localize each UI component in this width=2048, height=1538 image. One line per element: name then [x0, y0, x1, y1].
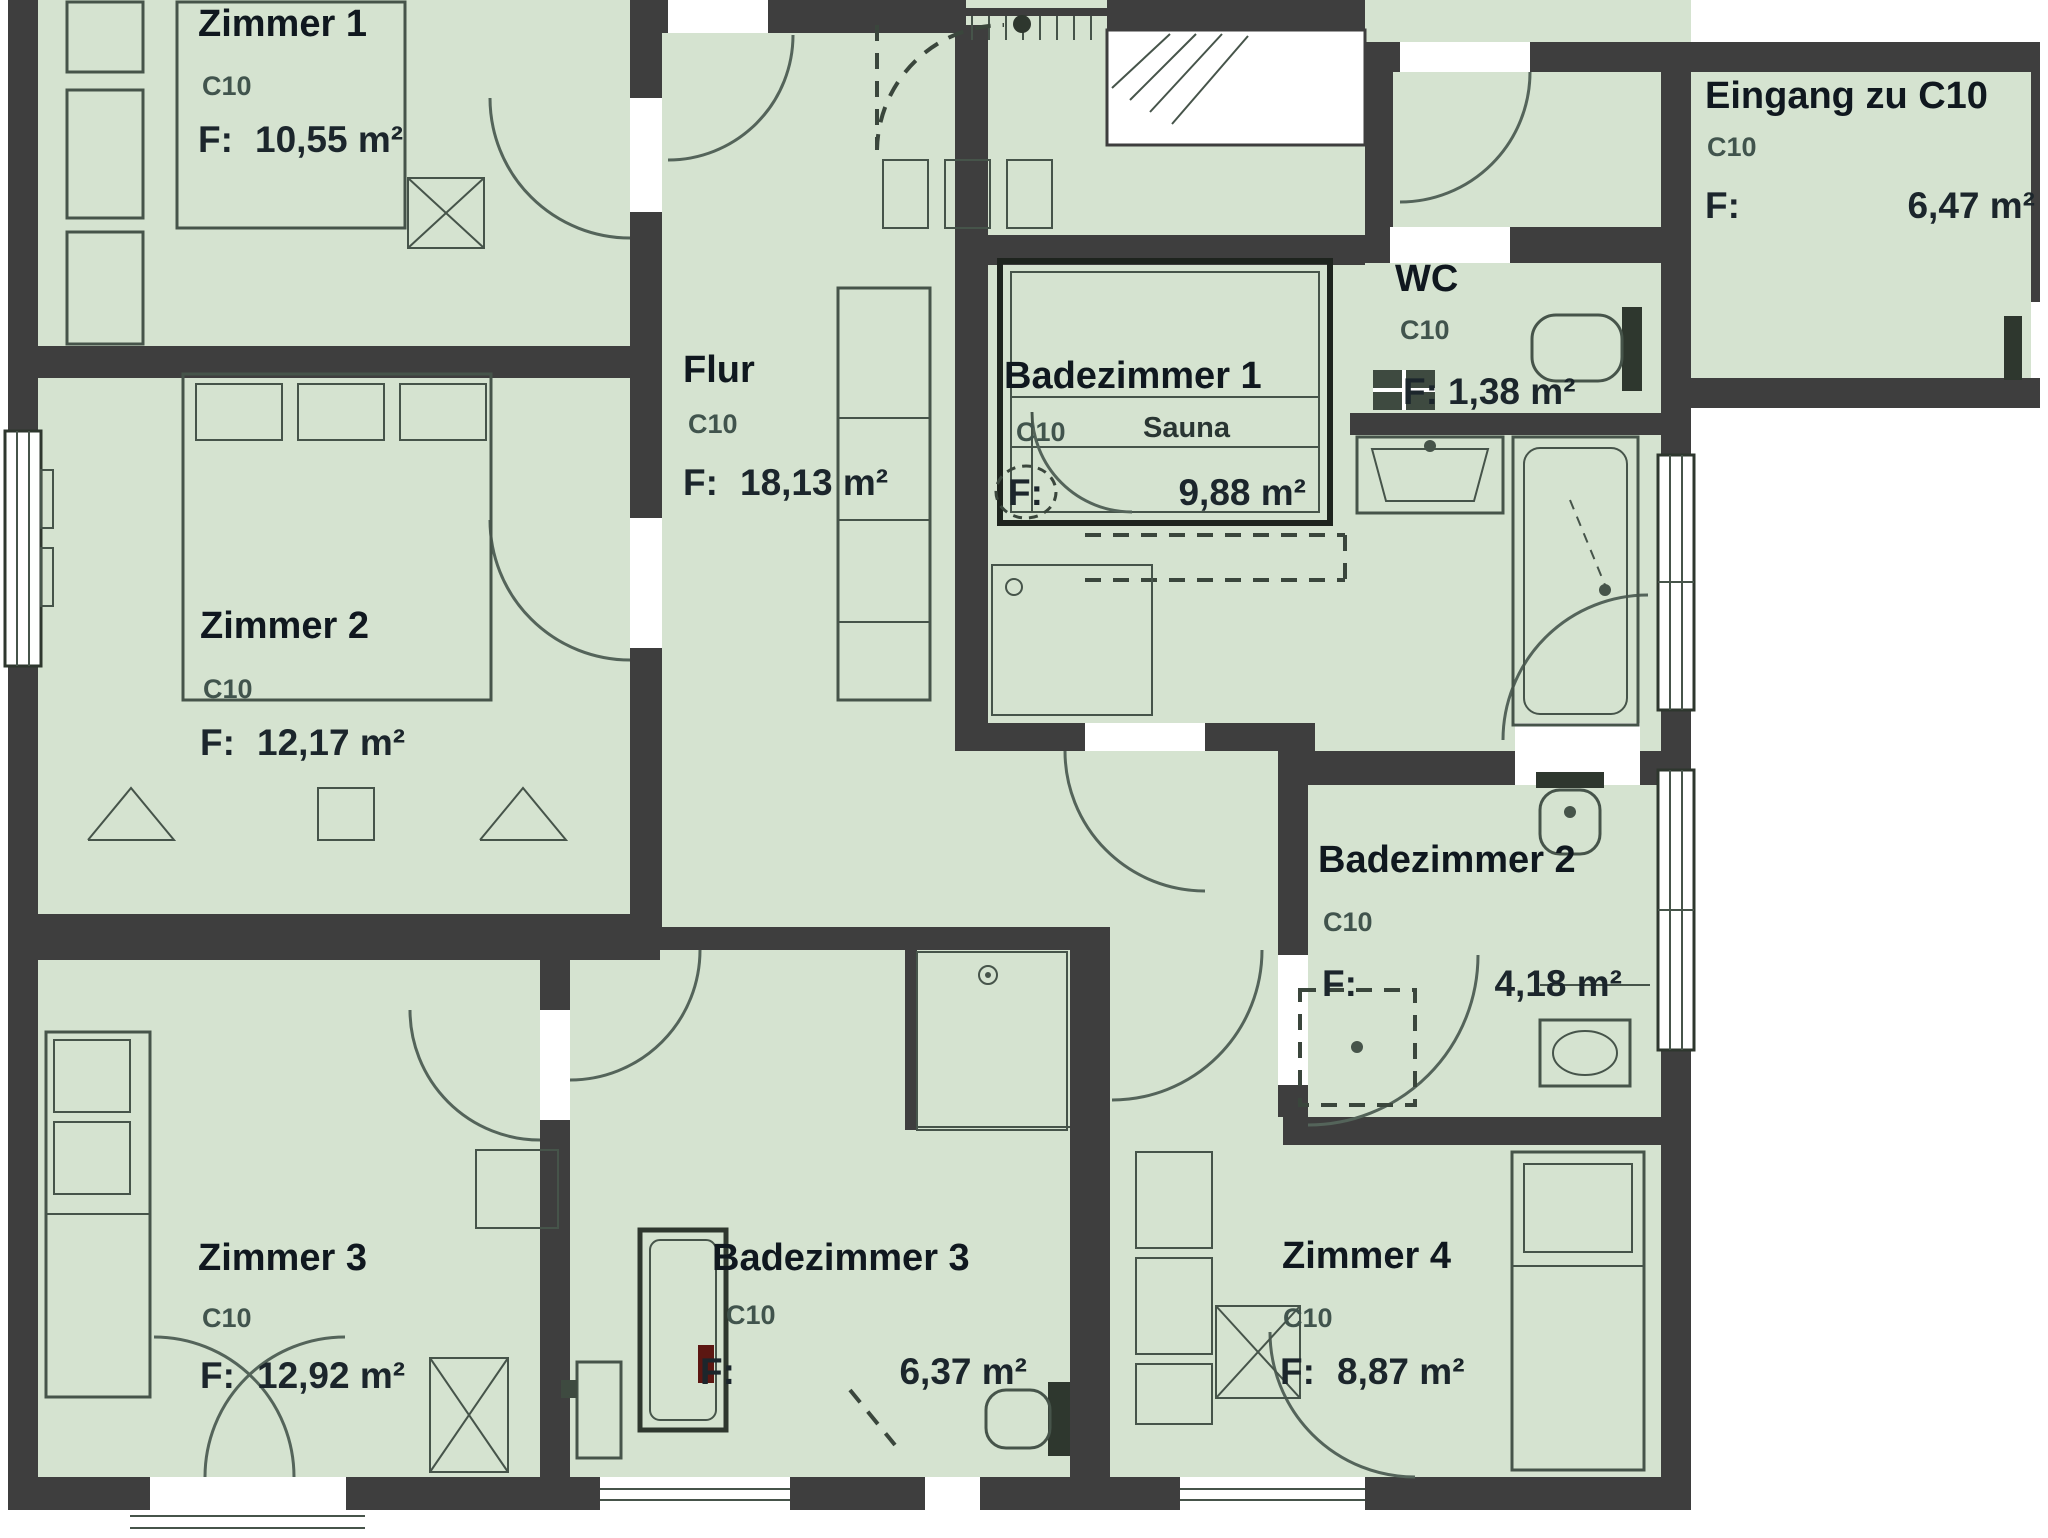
room-area: 10,55 m² — [255, 119, 403, 160]
wall — [955, 25, 988, 751]
door-opening — [630, 518, 662, 648]
room-title: Zimmer 1 — [198, 3, 367, 45]
room-title: Flur — [683, 349, 755, 391]
room-title: Badezimmer 2 — [1318, 839, 1576, 881]
room-area: 4,18 m² — [1494, 963, 1622, 1004]
wall — [2031, 42, 2040, 302]
room-title: Badezimmer 3 — [712, 1237, 970, 1279]
room-f-label: F: — [1403, 371, 1438, 412]
room-unit: C10 — [726, 1300, 776, 1330]
room-title: Zimmer 4 — [1282, 1235, 1451, 1277]
room-title: Badezimmer 1 — [1004, 355, 1262, 397]
room-unit: C10 — [1016, 417, 1066, 447]
wall — [1691, 378, 2040, 408]
newel-post — [1013, 15, 1031, 33]
wall — [1070, 950, 1110, 1477]
room-f-label: F: — [700, 1351, 735, 1392]
wall — [768, 0, 966, 33]
wall — [630, 927, 1110, 950]
wall — [8, 0, 38, 1510]
door-opening — [540, 1010, 570, 1120]
room-unit: C10 — [688, 409, 738, 439]
room-area: 12,17 m² — [257, 722, 405, 763]
room-area: 6,47 m² — [1907, 185, 2035, 226]
room-f-label: F: — [683, 462, 718, 503]
room-f-label: F: — [1322, 963, 1357, 1004]
room-f-label: F: — [1008, 472, 1043, 513]
room-unit: C10 — [203, 674, 253, 704]
room-area: 9,88 m² — [1178, 472, 1306, 513]
door-opening — [2031, 302, 2040, 378]
stair-wall — [966, 8, 1107, 16]
floor-plan-canvas: Zimmer 1 C10 F: 10,55 m² Zimmer 2 C10 F:… — [0, 0, 2048, 1538]
room-area: 6,37 m² — [899, 1351, 1027, 1392]
door-opening — [1278, 955, 1308, 1085]
wall — [1365, 68, 1393, 263]
stair-void — [1107, 30, 1365, 145]
window-badezimmer2-right — [1658, 770, 1694, 1050]
room-unit: C10 — [202, 1303, 252, 1333]
room-unit: C10 — [1707, 132, 1757, 162]
room-area: 18,13 m² — [740, 462, 888, 503]
room-f-label: F: — [200, 722, 235, 763]
door-opening — [1400, 42, 1530, 72]
window-bath-right — [1658, 455, 1694, 710]
room-title: Zimmer 2 — [200, 605, 369, 647]
room-title: WC — [1395, 258, 1458, 300]
room-f-label: F: — [1705, 185, 1740, 226]
door-opening — [1085, 723, 1205, 751]
room-unit: C10 — [1283, 1303, 1333, 1333]
room-title: Eingang zu C10 — [1705, 75, 1988, 117]
room-area: 1,38 m² — [1448, 371, 1576, 412]
room-area: 12,92 m² — [257, 1355, 405, 1396]
room-f-label: F: — [198, 119, 233, 160]
wall — [905, 950, 917, 1130]
sauna-label: Sauna — [1143, 412, 1231, 444]
room-f-label: F: — [200, 1355, 235, 1396]
room-unit: C10 — [1400, 315, 1450, 345]
terrace-door-opening — [150, 1477, 346, 1510]
window-opening — [925, 1477, 980, 1510]
room-area: 8,87 m² — [1337, 1351, 1465, 1392]
door-opening — [668, 0, 768, 33]
entrance-door-leaf — [2004, 316, 2022, 380]
door-opening — [630, 98, 662, 212]
floor-plan: Zimmer 1 C10 F: 10,55 m² Zimmer 2 C10 F:… — [0, 0, 2048, 1538]
wall — [1107, 0, 1365, 30]
room-title: Zimmer 3 — [198, 1237, 367, 1279]
room-unit: C10 — [1323, 907, 1373, 937]
window-opening — [600, 1477, 790, 1510]
room-f-label: F: — [1280, 1351, 1315, 1392]
wall — [1350, 413, 1691, 435]
window-opening — [1180, 1477, 1365, 1510]
room-unit: C10 — [202, 71, 252, 101]
